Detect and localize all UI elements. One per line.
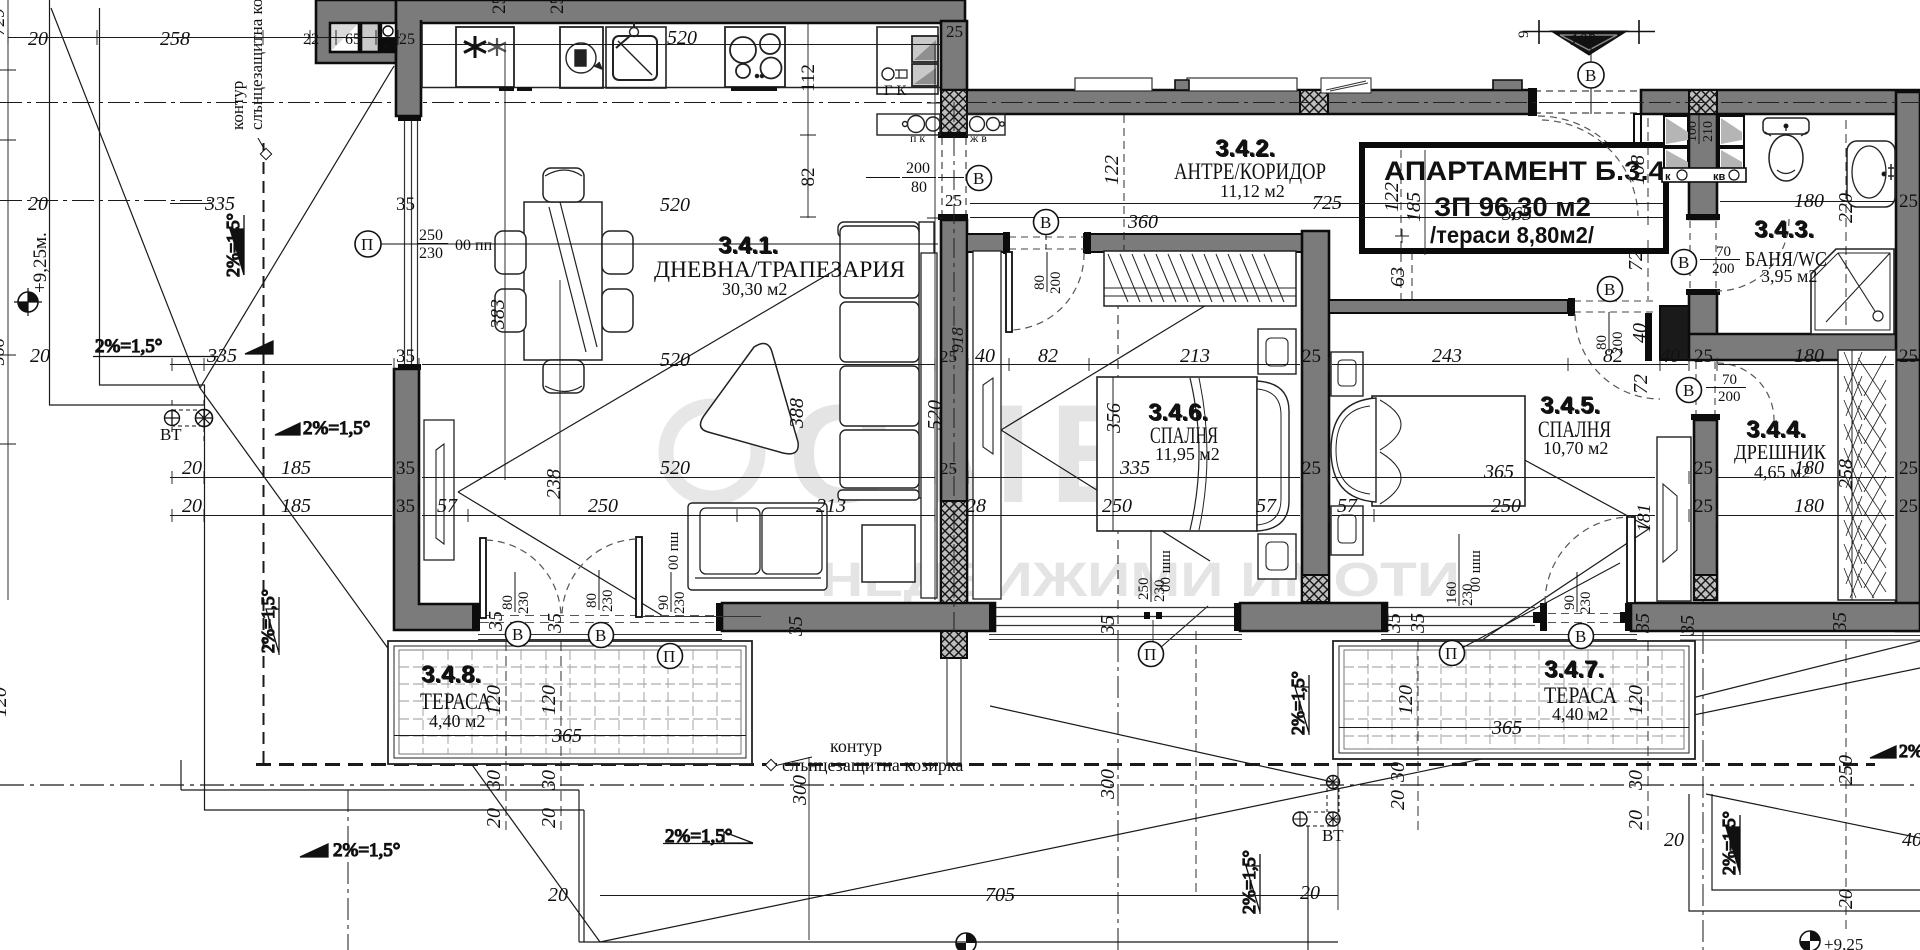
svg-text:300: 300 <box>1097 769 1119 800</box>
svg-text:250: 250 <box>1136 578 1152 601</box>
svg-text:120: 120 <box>538 685 560 715</box>
svg-text:729: 729 <box>0 9 8 36</box>
svg-text:80: 80 <box>500 595 516 610</box>
svg-text:335: 335 <box>206 345 237 367</box>
svg-text:2%=1,5°: 2%=1,5° <box>223 213 243 277</box>
svg-text:520: 520 <box>924 400 946 430</box>
svg-text:335: 335 <box>204 193 235 215</box>
svg-text:30: 30 <box>1625 770 1647 791</box>
svg-text:40: 40 <box>1629 323 1651 343</box>
svg-text:В: В <box>973 169 984 188</box>
svg-text:250: 250 <box>588 495 618 517</box>
svg-text:+9,25: +9,25 <box>1824 935 1863 950</box>
svg-text:П: П <box>1144 645 1156 664</box>
svg-text:25: 25 <box>1694 458 1713 479</box>
svg-text:25: 25 <box>1899 496 1918 517</box>
svg-text:122: 122 <box>1101 155 1123 185</box>
svg-text:20: 20 <box>182 457 202 479</box>
svg-text:35: 35 <box>1829 612 1851 633</box>
svg-text:В: В <box>595 626 606 645</box>
svg-text:П: П <box>1445 644 1457 663</box>
svg-text:20: 20 <box>28 193 48 215</box>
svg-text:63: 63 <box>1387 267 1409 287</box>
svg-text:365: 365 <box>1491 717 1522 739</box>
svg-text:3.4.5.: 3.4.5. <box>1540 392 1600 419</box>
svg-text:25: 25 <box>547 0 568 14</box>
svg-text:102: 102 <box>1570 30 1596 49</box>
svg-text:40: 40 <box>1902 829 1920 851</box>
svg-text:2%=1,5°: 2%=1,5° <box>1239 850 1259 914</box>
svg-text:72: 72 <box>1625 251 1647 271</box>
svg-text:80: 80 <box>1594 335 1610 350</box>
svg-text:82: 82 <box>1038 345 1058 367</box>
svg-text:2%=1: 2%=1 <box>1899 741 1920 761</box>
svg-text:/тераси 8,80м2/: /тераси 8,80м2/ <box>1430 222 1595 248</box>
svg-text:2%=1,5°: 2%=1,5° <box>258 589 278 653</box>
svg-text:20: 20 <box>1664 829 1684 851</box>
svg-text:180: 180 <box>1794 345 1824 367</box>
svg-text:АПАРТАМЕНТ Б.3.4: АПАРТАМЕНТ Б.3.4 <box>1384 156 1665 186</box>
svg-text:35: 35 <box>396 346 415 367</box>
svg-text:122: 122 <box>1381 182 1403 212</box>
svg-text:918: 918 <box>948 327 967 353</box>
svg-text:80: 80 <box>911 179 927 196</box>
svg-text:230: 230 <box>1578 592 1594 615</box>
svg-text:25: 25 <box>399 31 415 48</box>
svg-text:В: В <box>1683 381 1694 400</box>
svg-text:220: 220 <box>1835 193 1857 223</box>
svg-text:к: к <box>1665 171 1671 183</box>
svg-text:В: В <box>1575 627 1586 646</box>
svg-text:238: 238 <box>543 469 565 499</box>
svg-text:181: 181 <box>1634 504 1655 533</box>
svg-text:520: 520 <box>660 194 690 216</box>
svg-text:213: 213 <box>816 495 846 517</box>
svg-text:365: 365 <box>551 725 582 747</box>
svg-text:35: 35 <box>396 194 415 215</box>
svg-text:383: 383 <box>487 299 509 330</box>
svg-text:25: 25 <box>1302 346 1321 367</box>
svg-text:70: 70 <box>1716 244 1731 260</box>
svg-text:2%=1,5°: 2%=1,5° <box>333 840 400 861</box>
svg-text:25: 25 <box>946 22 963 41</box>
svg-text:705: 705 <box>985 884 1015 906</box>
svg-text:72: 72 <box>1630 374 1652 394</box>
svg-text:3.4.6.: 3.4.6. <box>1148 399 1208 426</box>
svg-text:3.4.3.: 3.4.3. <box>1754 216 1814 243</box>
svg-text:25: 25 <box>1899 191 1918 212</box>
svg-text:250: 250 <box>1835 755 1857 785</box>
svg-text:25: 25 <box>1694 496 1713 517</box>
svg-text:90: 90 <box>656 595 672 610</box>
svg-text:57: 57 <box>1337 495 1358 517</box>
svg-text:кв: кв <box>1713 171 1726 183</box>
svg-text:3.4.2.: 3.4.2. <box>1215 135 1275 162</box>
svg-text:258: 258 <box>160 28 190 50</box>
svg-text:57: 57 <box>437 495 458 517</box>
svg-text:35: 35 <box>785 616 807 637</box>
svg-text:+9,25м.: +9,25м. <box>30 232 51 293</box>
svg-text:25: 25 <box>1899 458 1918 479</box>
svg-text:9: 9 <box>1516 31 1532 39</box>
svg-text:70: 70 <box>1722 372 1737 388</box>
svg-text:250: 250 <box>419 227 443 244</box>
svg-text:11,95 м2: 11,95 м2 <box>1155 444 1220 464</box>
svg-text:120: 120 <box>1395 685 1417 715</box>
svg-text:112: 112 <box>798 64 819 92</box>
svg-text:2%=1,5°: 2%=1,5° <box>303 418 370 439</box>
svg-text:185: 185 <box>281 457 311 479</box>
svg-text:20: 20 <box>483 808 505 828</box>
svg-text:108: 108 <box>1627 155 1649 185</box>
svg-text:слънцезащитна козирка: слънцезащитна козирка <box>247 0 266 130</box>
svg-text:520: 520 <box>660 457 690 479</box>
svg-text:30,30 м2: 30,30 м2 <box>722 279 787 299</box>
svg-text:20: 20 <box>548 884 568 906</box>
svg-text:82: 82 <box>798 168 819 187</box>
svg-text:356: 356 <box>1103 403 1125 434</box>
svg-text:20: 20 <box>30 345 50 367</box>
svg-text:360: 360 <box>1127 211 1158 233</box>
svg-text:365: 365 <box>1483 461 1514 483</box>
svg-text:20: 20 <box>1625 810 1647 830</box>
svg-text:35: 35 <box>396 458 415 479</box>
svg-text:300: 300 <box>789 775 811 806</box>
svg-text:180: 180 <box>1794 190 1824 212</box>
svg-text:35: 35 <box>1632 613 1654 634</box>
svg-text:28: 28 <box>966 495 986 517</box>
svg-text:00 пп: 00 пп <box>455 237 493 254</box>
svg-text:20: 20 <box>1300 882 1320 904</box>
svg-text:К: К <box>384 41 391 52</box>
svg-text:35: 35 <box>396 496 415 517</box>
svg-text:250: 250 <box>1102 495 1132 517</box>
svg-text:20: 20 <box>538 808 560 828</box>
svg-text:25: 25 <box>1899 346 1918 367</box>
svg-text:725: 725 <box>1312 192 1342 214</box>
svg-text:35: 35 <box>485 611 507 632</box>
svg-text:230: 230 <box>419 245 443 262</box>
svg-text:ВТ: ВТ <box>1322 826 1344 845</box>
svg-text:2%=1,5°: 2%=1,5° <box>95 336 162 357</box>
svg-text:2%=1,5°: 2%=1,5° <box>1719 811 1739 875</box>
svg-text:00 шш: 00 шш <box>1468 550 1484 592</box>
svg-text:В: В <box>512 625 523 644</box>
svg-text:230: 230 <box>516 592 532 615</box>
svg-text:200: 200 <box>1718 389 1741 405</box>
svg-text:30: 30 <box>538 770 560 791</box>
svg-text:200: 200 <box>906 160 930 177</box>
svg-text:120: 120 <box>483 685 505 715</box>
svg-text:120: 120 <box>0 687 11 717</box>
svg-text:25: 25 <box>489 0 510 14</box>
svg-text:180: 180 <box>1794 457 1824 479</box>
svg-text:35: 35 <box>1383 613 1405 634</box>
svg-text:00 пш: 00 пш <box>666 531 682 570</box>
svg-text:35: 35 <box>544 613 566 634</box>
svg-text:40: 40 <box>975 345 995 367</box>
svg-text:160: 160 <box>1444 582 1460 605</box>
svg-text:ВТ: ВТ <box>160 425 182 444</box>
svg-text:185: 185 <box>281 495 311 517</box>
svg-text:22: 22 <box>303 31 319 48</box>
svg-text:230: 230 <box>600 590 616 613</box>
svg-text:57: 57 <box>1256 495 1277 517</box>
svg-text:п к: п к <box>910 131 925 145</box>
svg-text:4,40 м2: 4,40 м2 <box>429 711 485 731</box>
svg-text:11,12 м2: 11,12 м2 <box>1220 181 1285 201</box>
svg-text:230: 230 <box>672 592 688 615</box>
svg-text:30: 30 <box>483 770 505 791</box>
svg-text:120: 120 <box>1625 685 1647 715</box>
svg-text:80: 80 <box>584 593 600 608</box>
svg-text:35: 35 <box>1407 613 1429 634</box>
svg-text:3.4.8.: 3.4.8. <box>421 661 481 688</box>
svg-text:контур: контур <box>830 736 882 756</box>
svg-text:200: 200 <box>1610 332 1626 355</box>
svg-text:3.4.1.: 3.4.1. <box>718 232 778 259</box>
svg-text:00 шш: 00 шш <box>1158 550 1174 592</box>
svg-text:П: П <box>663 647 675 666</box>
svg-text:контур: контур <box>228 81 247 130</box>
svg-text:30: 30 <box>1387 762 1409 783</box>
svg-text:10,70 м2: 10,70 м2 <box>1543 438 1608 458</box>
svg-text:В: В <box>1604 280 1615 299</box>
svg-text:335: 335 <box>1119 457 1150 479</box>
svg-text:200: 200 <box>1048 272 1064 295</box>
svg-text:365: 365 <box>1501 203 1532 225</box>
svg-text:520: 520 <box>667 27 697 49</box>
svg-text:В: В <box>1040 213 1051 232</box>
svg-text:250: 250 <box>1491 495 1521 517</box>
svg-text:3,95 м2: 3,95 м2 <box>1761 266 1817 286</box>
svg-text:35: 35 <box>1097 615 1119 636</box>
svg-text:213: 213 <box>1180 345 1210 367</box>
svg-text:Г К: Г К <box>884 83 907 99</box>
svg-text:200: 200 <box>1712 261 1735 277</box>
svg-text:3.4.7.: 3.4.7. <box>1544 656 1604 683</box>
svg-text:20: 20 <box>28 28 48 50</box>
svg-text:20: 20 <box>182 495 202 517</box>
svg-text:566: 566 <box>0 339 8 366</box>
svg-text:243: 243 <box>1432 345 1462 367</box>
svg-text:25: 25 <box>1694 346 1713 367</box>
svg-text:25: 25 <box>1302 458 1321 479</box>
svg-text:П: П <box>361 235 373 254</box>
svg-text:210: 210 <box>1701 121 1716 142</box>
svg-text:35: 35 <box>1677 615 1699 636</box>
svg-text:520: 520 <box>660 349 690 371</box>
svg-text:258: 258 <box>1835 459 1857 489</box>
svg-text:40: 40 <box>1660 345 1680 367</box>
svg-text:80: 80 <box>1032 275 1048 290</box>
svg-text:4,40 м2: 4,40 м2 <box>1552 704 1608 724</box>
svg-text:388: 388 <box>786 398 808 429</box>
svg-text:3.4.4.: 3.4.4. <box>1746 416 1806 443</box>
svg-text:20: 20 <box>1387 790 1409 810</box>
svg-text:2%=1,5°: 2%=1,5° <box>1288 671 1308 735</box>
svg-text:ж в: ж в <box>969 131 987 145</box>
svg-text:В: В <box>1585 66 1596 85</box>
svg-text:180: 180 <box>1794 495 1824 517</box>
svg-text:В: В <box>1678 253 1689 272</box>
svg-text:90: 90 <box>1562 595 1578 610</box>
svg-text:65: 65 <box>345 31 361 48</box>
svg-text:185: 185 <box>1403 192 1425 222</box>
svg-text:20: 20 <box>1835 889 1857 909</box>
